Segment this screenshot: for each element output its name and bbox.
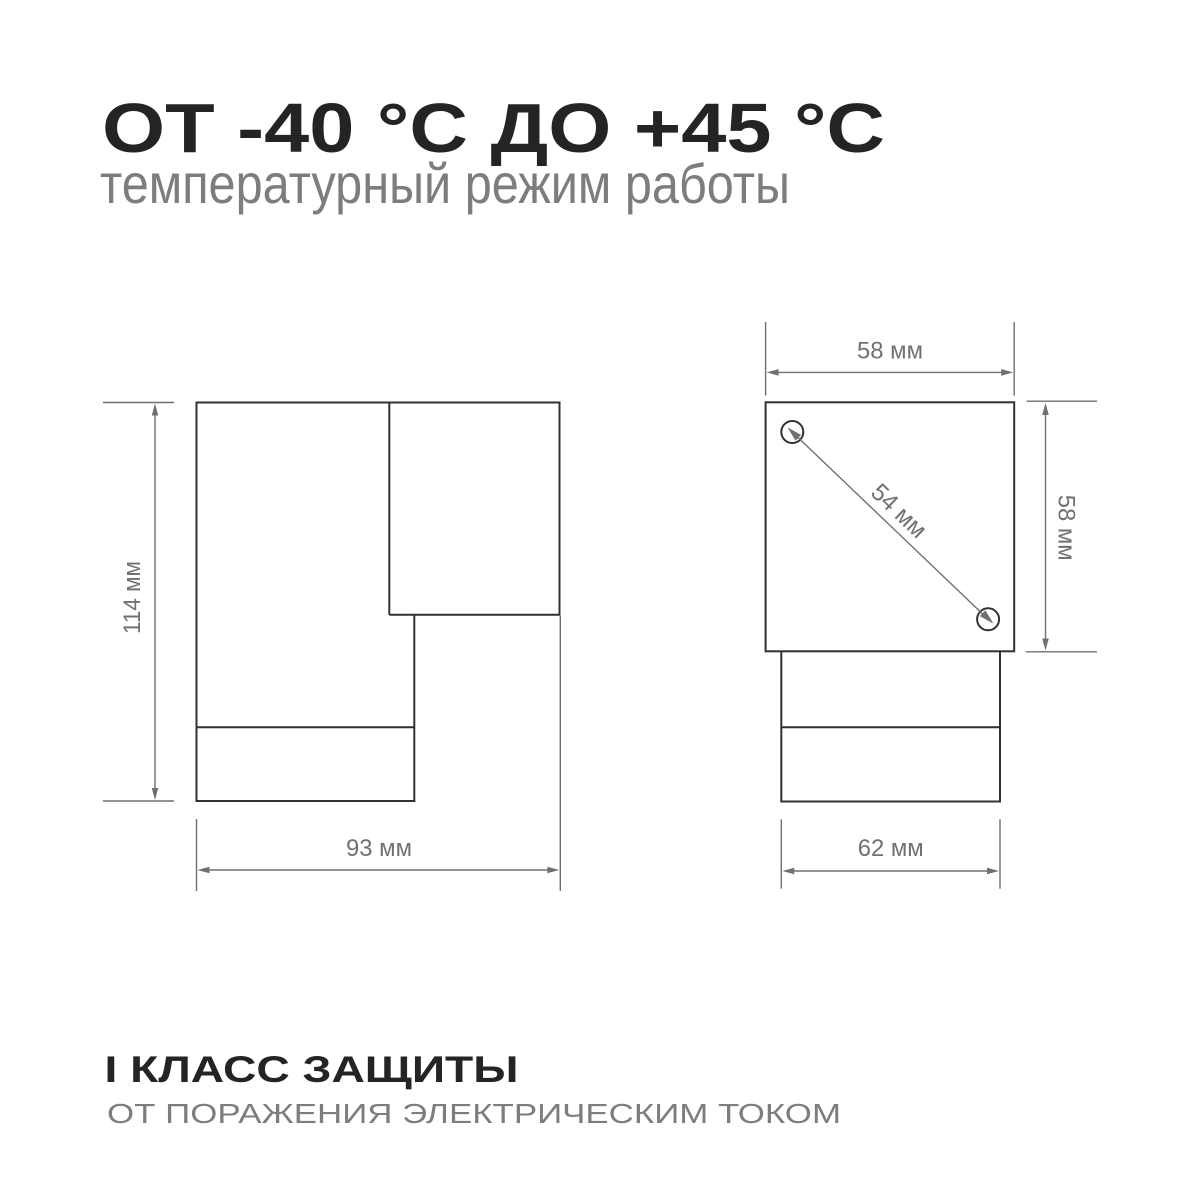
svg-text:I КЛАСС ЗАЩИТЫ: I КЛАСС ЗАЩИТЫ xyxy=(105,1048,519,1090)
svg-text:температурный режим работы: температурный режим работы xyxy=(100,152,790,215)
svg-text:58 мм: 58 мм xyxy=(1053,495,1080,561)
svg-text:ОТ ПОРАЖЕНИЯ ЭЛЕКТРИЧЕСКИМ ТОК: ОТ ПОРАЖЕНИЯ ЭЛЕКТРИЧЕСКИМ ТОКОМ xyxy=(107,1098,841,1129)
svg-text:58 мм: 58 мм xyxy=(857,338,923,365)
svg-text:114 мм: 114 мм xyxy=(119,561,146,634)
svg-text:93 мм: 93 мм xyxy=(346,835,412,862)
svg-text:62 мм: 62 мм xyxy=(858,835,924,862)
